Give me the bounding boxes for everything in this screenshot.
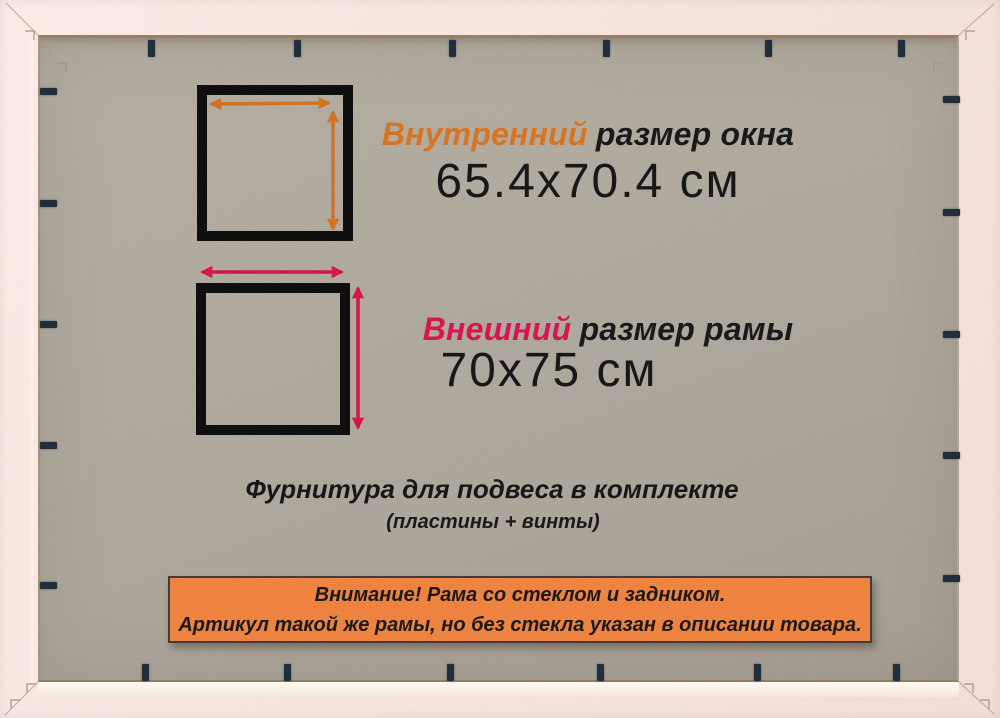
- backing-clip: [447, 664, 454, 681]
- backing-clip: [142, 664, 149, 681]
- backing-clip: [943, 331, 960, 338]
- hardware-note-line1: Фурнитура для подвеса в комплекте: [192, 474, 792, 505]
- notice-line1: Внимание! Рама со стеклом и задником.: [315, 581, 726, 609]
- notice-line2: Артикул такой же рамы, но без стекла ука…: [178, 611, 861, 639]
- outer-size-title: Внешнийразмер рамы: [308, 311, 908, 347]
- backing-clip: [449, 40, 456, 57]
- hardware-note-line2: (пластины + винты): [193, 511, 793, 534]
- inner-size-title: Внутреннийразмер окна: [288, 116, 888, 152]
- inner-size-title-highlight: Внутренний: [382, 116, 588, 152]
- backing-clip: [40, 200, 57, 207]
- backing-clip: [603, 40, 610, 57]
- backing-clip: [40, 321, 57, 328]
- inner-size-value: 65.4x70.4 см: [288, 157, 888, 207]
- backing-clip: [943, 209, 960, 216]
- backing-clip: [765, 40, 772, 57]
- backing-clip: [943, 452, 960, 459]
- backing-clip: [898, 40, 905, 57]
- backing-clip: [754, 664, 761, 681]
- backing-clip: [40, 442, 57, 449]
- inner-size-title-rest: размер окна: [596, 116, 794, 152]
- backing-clip: [148, 40, 155, 57]
- backing-clip: [943, 575, 960, 582]
- backing-clip: [40, 582, 57, 589]
- notice-banner: Внимание! Рама со стеклом и задником. Ар…: [168, 576, 872, 643]
- backing-clip: [40, 88, 57, 95]
- frame-back-product-photo: Внутреннийразмер окна 65.4x70.4 см Внешн…: [0, 0, 1000, 718]
- outer-size-title-rest: размер рамы: [580, 311, 794, 347]
- backing-clip: [284, 664, 291, 681]
- outer-size-title-highlight: Внешний: [423, 311, 572, 347]
- backing-clip: [893, 664, 900, 681]
- backing-clip: [294, 40, 301, 57]
- backing-clip: [943, 96, 960, 103]
- backing-clip: [597, 664, 604, 681]
- outer-size-value: 70x75 см: [249, 346, 849, 396]
